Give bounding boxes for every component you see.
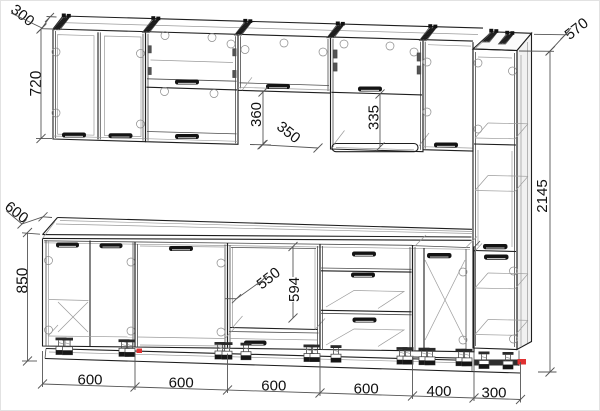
svg-text:600: 600	[261, 377, 286, 394]
svg-text:2145: 2145	[534, 179, 551, 212]
svg-text:600: 600	[354, 380, 379, 397]
svg-text:400: 400	[426, 383, 451, 400]
svg-text:600: 600	[169, 374, 194, 391]
svg-text:360: 360	[248, 102, 265, 127]
svg-text:300: 300	[481, 385, 506, 402]
svg-text:720: 720	[28, 70, 45, 96]
svg-text:850: 850	[15, 267, 32, 293]
svg-text:594: 594	[286, 277, 303, 302]
svg-text:600: 600	[77, 371, 102, 388]
